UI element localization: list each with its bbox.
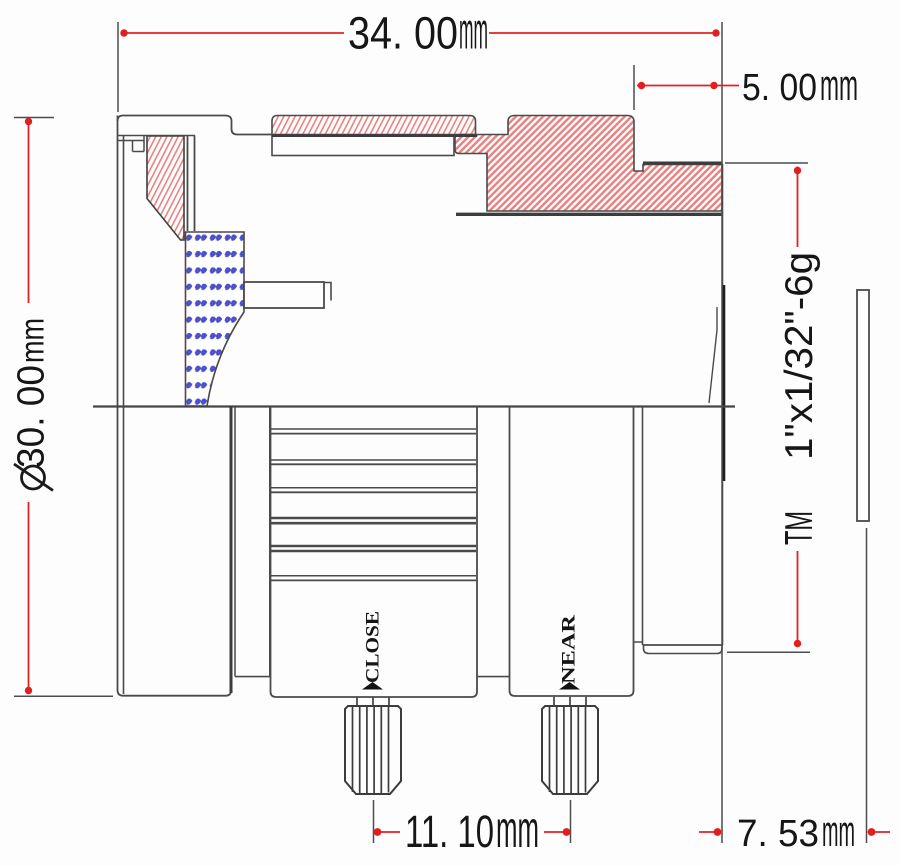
svg-text:30. 00: 30. 00 [11, 365, 53, 468]
svg-text:mm: mm [459, 3, 488, 61]
svg-text:5. 00: 5. 00 [742, 67, 817, 109]
svg-text:7. 53: 7. 53 [737, 813, 819, 855]
svg-text:11. 10: 11. 10 [405, 806, 494, 857]
svg-text:mm: mm [14, 318, 51, 363]
svg-text:NEAR: NEAR [559, 615, 580, 684]
svg-text:34. 00: 34. 00 [348, 8, 458, 59]
svg-text:1"x1/32"-6g: 1"x1/32"-6g [778, 252, 821, 460]
svg-text:CLOSE: CLOSE [363, 611, 384, 683]
svg-text:mm: mm [496, 801, 539, 859]
svg-text:mm: mm [820, 61, 858, 110]
svg-text:TM: TM [778, 511, 821, 545]
svg-text:mm: mm [822, 807, 855, 856]
